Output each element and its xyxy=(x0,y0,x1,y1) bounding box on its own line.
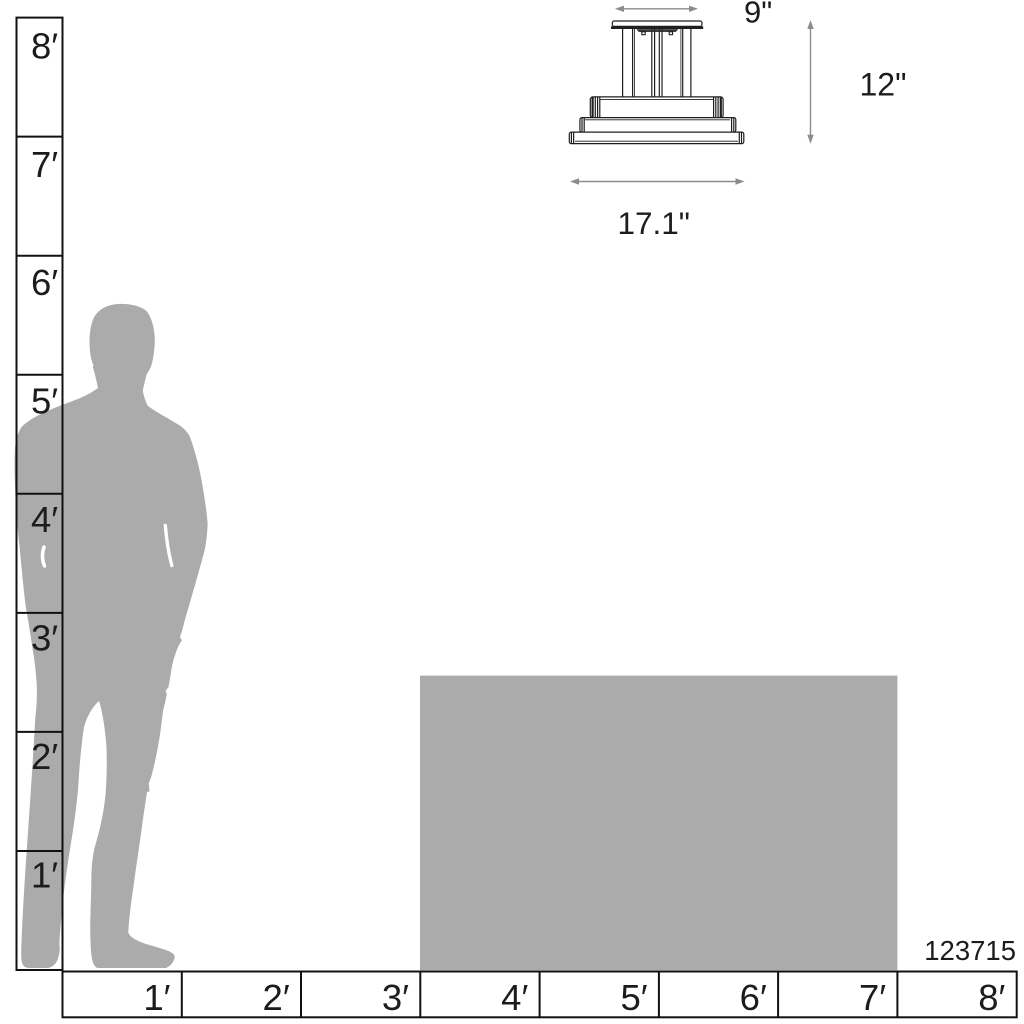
svg-text:3′: 3′ xyxy=(31,618,58,659)
svg-text:7′: 7′ xyxy=(31,144,58,185)
svg-text:3′: 3′ xyxy=(382,977,409,1018)
svg-text:6′: 6′ xyxy=(31,262,58,303)
svg-text:2′: 2′ xyxy=(263,977,290,1018)
svg-text:2′: 2′ xyxy=(31,736,58,777)
svg-text:5′: 5′ xyxy=(31,381,58,422)
svg-text:123715: 123715 xyxy=(924,935,1016,966)
svg-text:1′: 1′ xyxy=(31,855,58,896)
svg-text:7′: 7′ xyxy=(859,977,886,1018)
svg-text:9": 9" xyxy=(744,0,772,30)
svg-text:8′: 8′ xyxy=(31,25,58,66)
svg-text:1′: 1′ xyxy=(143,977,170,1018)
svg-text:4′: 4′ xyxy=(501,977,528,1018)
svg-text:17.1": 17.1" xyxy=(618,205,691,241)
svg-text:4′: 4′ xyxy=(31,499,58,540)
svg-text:6′: 6′ xyxy=(740,977,767,1018)
svg-text:5′: 5′ xyxy=(620,977,647,1018)
svg-text:8′: 8′ xyxy=(978,977,1005,1018)
svg-text:12": 12" xyxy=(860,67,907,103)
